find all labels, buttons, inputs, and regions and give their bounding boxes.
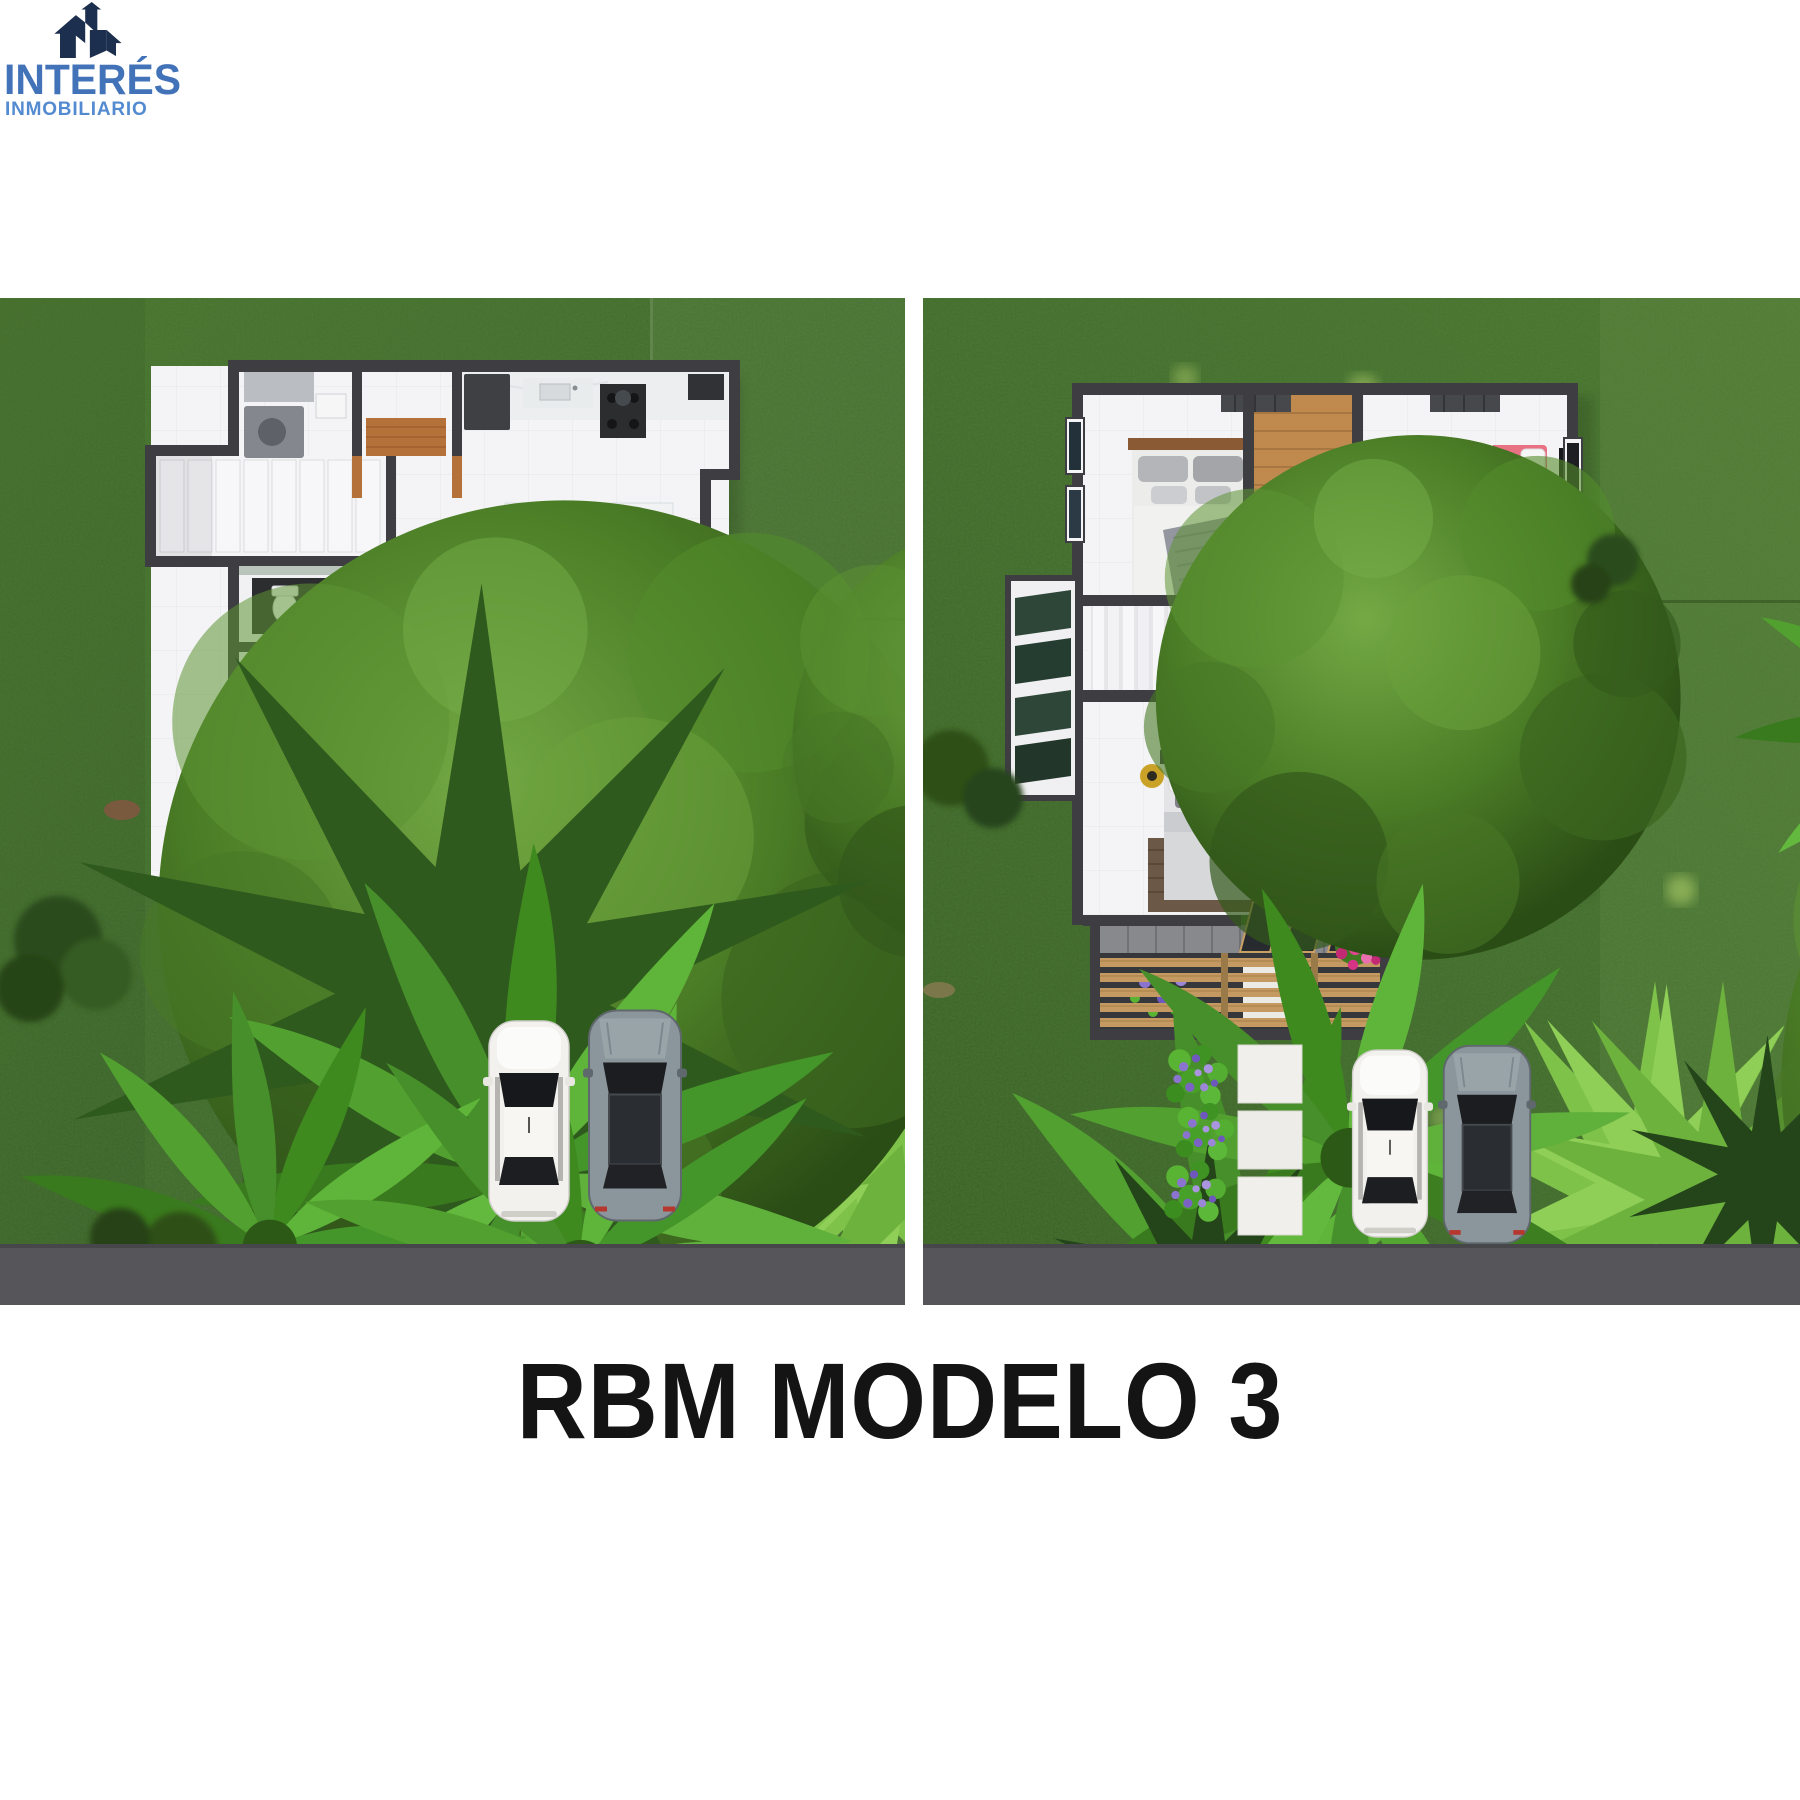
entry-hall — [366, 418, 446, 456]
walkway — [1238, 1045, 1302, 1235]
road — [923, 1244, 1800, 1305]
logo-house-arrow-icon — [52, 2, 124, 58]
gray-car — [583, 1011, 687, 1221]
road — [0, 1244, 905, 1305]
poster: INTERÉS INMOBILIARIO — [0, 0, 1800, 1800]
tree — [1144, 435, 1687, 960]
brand-subtitle: INMOBILIARIO — [5, 99, 215, 121]
model-title: RBM MODELO 3 — [90, 1338, 1710, 1463]
ground-floor-plan — [0, 298, 905, 1305]
fridge — [464, 374, 510, 430]
gray-car — [1438, 1046, 1536, 1243]
ground-floor-plan-panel — [0, 298, 905, 1305]
white-car — [483, 1021, 575, 1221]
white-car — [1347, 1050, 1433, 1237]
upper-floor-plan — [923, 298, 1800, 1305]
brand-logo: INTERÉS INMOBILIARIO — [0, 0, 220, 135]
staircase — [156, 456, 386, 556]
upper-floor-plan-panel — [923, 298, 1800, 1305]
brand-name: INTERÉS — [4, 56, 204, 105]
louvre-windows — [1008, 578, 1078, 798]
wall-oven — [688, 374, 724, 400]
